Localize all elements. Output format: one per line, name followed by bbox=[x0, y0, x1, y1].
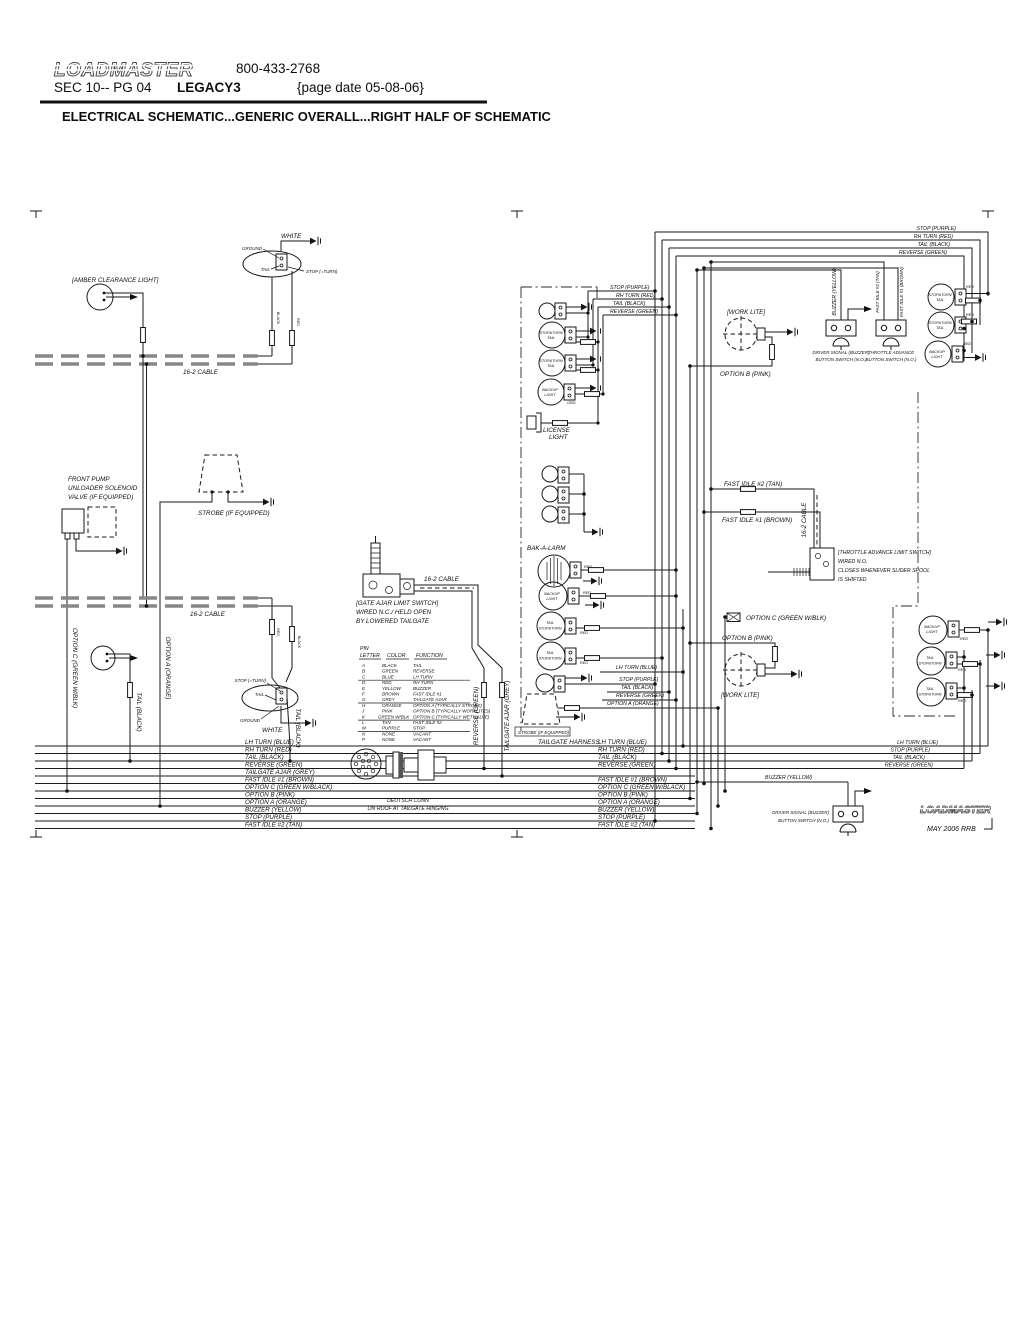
svg-text:GREEN: GREEN bbox=[382, 669, 399, 674]
wire-label: LH TURN (BLUE) bbox=[616, 665, 657, 671]
svg-text:RED: RED bbox=[958, 699, 966, 703]
pump-label-3: VALVE (IF EQUIPPED) bbox=[68, 494, 133, 501]
svg-text:BACKUP: BACKUP bbox=[544, 592, 560, 596]
svg-text:LIGHT: LIGHT bbox=[931, 355, 943, 359]
bus-label: RH TURN (RED) bbox=[598, 747, 645, 754]
deutsch-connector: DEUTSCH CONN ON ROOF AT TAILGATE HINGING bbox=[351, 749, 449, 812]
option-a-wire-label: OPTION A (ORANGE) bbox=[164, 637, 171, 700]
function-header: FUNCTION bbox=[416, 653, 443, 659]
svg-text:TAIL: TAIL bbox=[546, 621, 554, 625]
svg-text:H: H bbox=[362, 703, 366, 708]
option-c-valve: OPTION C (GREEN W/BLK) bbox=[725, 613, 826, 622]
wire-label: TAIL (BLACK) bbox=[893, 755, 926, 761]
license-label-2: LIGHT bbox=[549, 434, 569, 441]
bottom-right-routing: LH TURN (BLUE) STOP (PURPLE) TAIL (BLACK… bbox=[885, 392, 988, 769]
wire-label: REVERSE (GREEN) bbox=[616, 693, 664, 699]
model-name: LEGACY3 bbox=[177, 80, 241, 95]
deutsch-label-1: DEUTSCH CONN bbox=[387, 798, 429, 804]
svg-text:LIGHT: LIGHT bbox=[926, 630, 938, 634]
cable-label-2: 16-2 CABLE bbox=[190, 611, 226, 618]
pin-header: PIN bbox=[360, 646, 369, 652]
tail-label: TAIL bbox=[261, 267, 271, 272]
svg-text:BLACK: BLACK bbox=[382, 663, 398, 668]
black-wire-label: BLACK bbox=[276, 312, 280, 325]
svg-text:VACANT: VACANT bbox=[413, 737, 432, 742]
white-wire-label-2: WHITE bbox=[262, 727, 283, 734]
wire-label: LH TURN (BLUE) bbox=[897, 740, 938, 746]
svg-text:TAIL: TAIL bbox=[936, 298, 944, 302]
page-title: ELECTRICAL SCHEMATIC...GENERIC OVERALL..… bbox=[62, 109, 552, 124]
svg-text:TAN: TAN bbox=[382, 720, 391, 725]
strobe-label-1: STROBE (IF EQUIPPED) bbox=[198, 510, 270, 517]
bus-label: STOP (PURPLE) bbox=[245, 814, 292, 821]
fast-idle-1-label: FAST IDLE #1 (BROWN) bbox=[722, 517, 792, 524]
page-date: {page date 05-08-06} bbox=[297, 80, 424, 95]
bus-label: FAST IDLE #2 (TAN) bbox=[598, 822, 655, 829]
svg-text:ORANGE: ORANGE bbox=[382, 703, 403, 708]
svg-text:RED: RED bbox=[958, 668, 966, 672]
throttle-advance-label-1: THROTTLE ADVANCE bbox=[868, 350, 915, 355]
tail-light-top: WHITE GROUND TAIL STOP (=TURN) BLACK RED bbox=[242, 233, 338, 364]
bak-a-larm-label: BAK-A-LARM bbox=[527, 545, 566, 552]
bus-label: FAST IDLE #1 (BROWN) bbox=[245, 777, 314, 784]
svg-text:TAIL: TAIL bbox=[926, 687, 934, 691]
tail-light-lower: RED BLACK STOP (=TURN) TAIL GROUND WHITE… bbox=[235, 598, 316, 761]
fast-idle-circuit: FAST IDLE #2 (TAN) FAST IDLE #1 (BROWN) … bbox=[704, 481, 820, 548]
stop-turn-label: STOP (=TURN) bbox=[306, 269, 338, 274]
riser-wires bbox=[655, 232, 725, 829]
revision-date: MAY 2006 RRB bbox=[927, 826, 976, 833]
cable-label-4: 16-2 CABLE bbox=[801, 502, 808, 538]
footer-logo-block: LOADMASTER MAY 2006 RRB bbox=[920, 805, 991, 833]
svg-text:RED: RED bbox=[580, 661, 588, 665]
bus-label: TAILGATE AJAR (GREY) bbox=[245, 769, 315, 776]
bus-labels-left: LH TURN (BLUE) RH TURN (RED) TAIL (BLACK… bbox=[245, 739, 332, 829]
svg-text:GREY: GREY bbox=[382, 697, 396, 702]
tal-label-1: [THROTTLE ADVANCE LIMIT SWITCH] bbox=[837, 550, 931, 556]
svg-text:BACKUP: BACKUP bbox=[929, 350, 945, 354]
svg-text:RED: RED bbox=[966, 313, 974, 317]
phone-number: 800-433-2768 bbox=[236, 61, 320, 76]
driver-signal-switch-top: BUZZER (YELLOW) DRIVER SIGNAL (BUZZER) B… bbox=[697, 268, 872, 362]
rear-lights-upper-right: STOP&TURN TAIL RED STOP&TURN TAIL RED BA… bbox=[925, 284, 988, 367]
rear-lights-lower-right: BACKUP LIGHT RED TAIL STOP&TURN RED TAIL… bbox=[917, 616, 1007, 706]
wire-label: RH TURN (RED) bbox=[914, 234, 953, 240]
tal-label-2: WIRED N.O. bbox=[838, 559, 867, 565]
cable-bus-2: 16-2 CABLE bbox=[35, 598, 292, 618]
throttle-advance-limit-switch: [THROTTLE ADVANCE LIMIT SWITCH] WIRED N.… bbox=[768, 548, 931, 583]
buzzer-label-bottom: BUZZER (YELLOW) bbox=[765, 775, 813, 781]
wire-label: STOP (PURPLE) bbox=[917, 226, 957, 232]
svg-text:STOP&TURN: STOP&TURN bbox=[928, 321, 952, 325]
svg-text:TAIL: TAIL bbox=[547, 364, 555, 368]
svg-text:RED: RED bbox=[963, 342, 971, 346]
wire-label: REVERSE (GREEN) bbox=[899, 250, 947, 256]
svg-text:BUZZER: BUZZER bbox=[413, 686, 432, 691]
svg-text:G: G bbox=[362, 697, 366, 702]
option-b-label-1: OPTION B (PINK) bbox=[720, 371, 771, 378]
wire-label: REVERSE (GREEN) bbox=[610, 309, 658, 315]
cable-label-3: 16-2 CABLE bbox=[424, 576, 460, 583]
svg-text:LH TURN: LH TURN bbox=[413, 674, 433, 679]
svg-text:D: D bbox=[362, 680, 366, 685]
grd-label: GRD bbox=[567, 401, 576, 405]
bus-label: TAIL (BLACK) bbox=[598, 754, 637, 761]
driver-signal-label-1: DRIVER SIGNAL (BUZZER) bbox=[813, 350, 870, 355]
svg-text:E: E bbox=[362, 686, 366, 691]
svg-text:K: K bbox=[362, 714, 366, 719]
bus-label: OPTION B (PINK) bbox=[598, 792, 648, 799]
black-wire-label-2: BLACK bbox=[297, 636, 301, 649]
svg-text:BACKUP: BACKUP bbox=[924, 625, 940, 629]
svg-text:YELLOW: YELLOW bbox=[382, 686, 402, 691]
svg-text:OPTION A (TYPICALLY STROBE): OPTION A (TYPICALLY STROBE) bbox=[413, 703, 482, 708]
svg-text:RED: RED bbox=[960, 637, 968, 641]
marker-light-lower-left: TAIL (BLACK) bbox=[91, 646, 142, 761]
driver-signal-label-4: BUTTON SWITCH (N.O.) bbox=[778, 818, 829, 823]
fast-idle-2-wire-label: FAST IDLE #2 (TAN) bbox=[875, 271, 880, 313]
bak-a-larm: BAK-A-LARM RED bbox=[527, 545, 676, 587]
svg-text:STOP&TURN: STOP&TURN bbox=[538, 627, 562, 631]
svg-text:STOP&TURN: STOP&TURN bbox=[928, 293, 952, 297]
svg-text:J: J bbox=[361, 709, 365, 714]
svg-text:VACANT: VACANT bbox=[413, 731, 432, 736]
gate-label-1: [GATE AJAR LIMIT SWITCH] bbox=[355, 600, 438, 607]
bus-label: TAIL (BLACK) bbox=[245, 754, 284, 761]
svg-text:RED: RED bbox=[580, 631, 588, 635]
svg-text:RED: RED bbox=[382, 680, 392, 685]
bus-label: OPTION C (GREEN W/BLACK) bbox=[245, 784, 332, 791]
bus-label: OPTION C (GREEN W/BLACK) bbox=[598, 784, 685, 791]
option-c-label-2: OPTION C (GREEN W/BLK) bbox=[746, 615, 826, 622]
option-b-label-2: OPTION B (PINK) bbox=[722, 635, 773, 642]
svg-text:B: B bbox=[362, 669, 365, 674]
svg-text:C: C bbox=[362, 674, 366, 679]
svg-text:RH TURN: RH TURN bbox=[413, 680, 434, 685]
svg-text:NONE: NONE bbox=[382, 731, 396, 736]
driver-signal-label-3: DRIVER SIGNAL (BUZZER) bbox=[772, 810, 829, 815]
worklite-label-2: [WORK LITE] bbox=[720, 692, 759, 699]
svg-text:STOP&TURN: STOP&TURN bbox=[918, 662, 942, 666]
svg-text:LIGHT: LIGHT bbox=[546, 597, 558, 601]
svg-text:TAIL: TAIL bbox=[546, 651, 554, 655]
amber-clearance-light: [AMBER CLEARANCE LIGHT] bbox=[71, 277, 159, 356]
svg-text:L: L bbox=[362, 720, 365, 725]
tailgate-ajar-wire-label: TAILGATE AJAR (GREY) bbox=[504, 681, 511, 752]
red-wire-label-2: RED bbox=[276, 628, 280, 636]
svg-text:RED: RED bbox=[966, 285, 974, 289]
bus-label: FAST IDLE #2 (TAN) bbox=[245, 822, 302, 829]
section-page: SEC 10-- PG 04 bbox=[54, 80, 152, 95]
wire-label: TAIL (BLACK) bbox=[613, 301, 646, 307]
pump-label-2: UNLOADER SOLENOID bbox=[68, 485, 138, 492]
worklite-label-1: [WORK LITE] bbox=[726, 309, 765, 316]
svg-text:M: M bbox=[362, 726, 366, 731]
tail-black-wire-label-1: TAIL (BLACK) bbox=[135, 692, 142, 731]
fast-idle-1-wire-label: FAST IDLE #1 (BROWN) bbox=[899, 266, 904, 317]
bus-label: OPTION A (ORANGE) bbox=[598, 799, 660, 806]
loadmaster-footer-logo: LOADMASTER bbox=[920, 805, 991, 816]
svg-text:NONE: NONE bbox=[382, 737, 396, 742]
svg-text:GREEN W/BLK: GREEN W/BLK bbox=[378, 714, 410, 719]
ground-label-2: GROUND bbox=[240, 718, 261, 723]
bus-label: LH TURN (BLUE) bbox=[598, 739, 647, 746]
option-c-wire-label: OPTION C (GREEN W/BLK) bbox=[71, 628, 78, 708]
driver-signal-switch-bottom: BUZZER (YELLOW) DRIVER SIGNAL (BUZZER) B… bbox=[697, 775, 872, 836]
svg-text:OPTION C (TYPICALLY WET VALVE): OPTION C (TYPICALLY WET VALVE) bbox=[413, 714, 490, 719]
strobe-label-2: STROBE (IF EQUIPPED) bbox=[518, 730, 570, 735]
ground-label: GROUND bbox=[242, 246, 263, 251]
wire-label: TAIL (BLACK) bbox=[918, 242, 951, 248]
svg-text:STOP&TURN: STOP&TURN bbox=[538, 657, 562, 661]
svg-text:PURPLE: PURPLE bbox=[382, 726, 401, 731]
svg-text:TAIL: TAIL bbox=[926, 656, 934, 660]
svg-text:OPTION B (TYPICALLY WORKLITES): OPTION B (TYPICALLY WORKLITES) bbox=[413, 709, 491, 714]
letter-header: LETTER bbox=[360, 653, 380, 659]
red-wire-label: RED bbox=[296, 318, 300, 326]
svg-text:STOP&TURN: STOP&TURN bbox=[539, 331, 563, 335]
svg-text:A: A bbox=[361, 663, 365, 668]
svg-text:REVERSE: REVERSE bbox=[413, 669, 436, 674]
svg-text:BROWN: BROWN bbox=[382, 692, 400, 697]
svg-text:N: N bbox=[362, 731, 366, 736]
bus-label: OPTION B (PINK) bbox=[245, 792, 295, 799]
bus-label: BUZZER (YELLOW) bbox=[598, 807, 654, 814]
svg-text:PINK: PINK bbox=[382, 709, 394, 714]
wire-label: REVERSE (GREEN) bbox=[885, 763, 933, 769]
svg-text:STOP: STOP bbox=[413, 726, 425, 731]
color-header: COLOR bbox=[387, 653, 406, 659]
tailgate-lights-top: STOP (PURPLE) RH TURN (RED) TAIL (BLACK)… bbox=[527, 285, 676, 441]
worklite-bottom: OPTION B (PINK) [WORK LITE] bbox=[690, 635, 802, 699]
tal-label-3: CLOSES WHENEVER SLIDER SPOOL bbox=[838, 568, 930, 574]
driver-signal-label-2: BUTTON SWITCH (N.O.) bbox=[816, 357, 867, 362]
cable-label-1: 16-2 CABLE bbox=[183, 369, 219, 376]
bus-label: REVERSE (GREEN) bbox=[598, 762, 655, 769]
wire-label: STOP (PURPLE) bbox=[619, 677, 659, 683]
license-label-1: LICENSE bbox=[543, 427, 571, 434]
svg-text:P: P bbox=[362, 737, 365, 742]
bus-label: STOP (PURPLE) bbox=[598, 814, 645, 821]
svg-text:TAILGATE AJAR: TAILGATE AJAR bbox=[413, 697, 447, 702]
tailgate-harness-label: TAILGATE HARNESS bbox=[538, 739, 600, 746]
buzzer-wire-label: BUZZER (YELLOW) bbox=[832, 268, 838, 316]
amber-clearance-label: [AMBER CLEARANCE LIGHT] bbox=[71, 277, 159, 284]
register-marks bbox=[30, 211, 994, 837]
wire-label: OPTION A (ORANGE) bbox=[607, 701, 659, 707]
schematic-page: LOADMASTER 800-433-2768 SEC 10-- PG 04 L… bbox=[0, 0, 1020, 1320]
marker-lights-middle bbox=[542, 466, 603, 536]
bus-label: RH TURN (RED) bbox=[245, 747, 292, 754]
stop-turn-label-2: STOP (=TURN) bbox=[235, 678, 267, 683]
front-pump-solenoid-valve: FRONT PUMP UNLOADER SOLENOID VALVE (IF E… bbox=[62, 476, 138, 791]
tail-black-wire-label-2: TAIL (BLACK) bbox=[294, 708, 301, 747]
tail-label-2: TAIL bbox=[255, 692, 265, 697]
pump-label-1: FRONT PUMP bbox=[68, 476, 110, 483]
worklite-top: [WORK LITE] OPTION B (PINK) bbox=[690, 309, 798, 378]
svg-text:LIGHT: LIGHT bbox=[544, 393, 556, 397]
svg-text:STOP&TURN: STOP&TURN bbox=[918, 693, 942, 697]
pin-table: PIN LETTER COLOR FUNCTION ABLACKTAIL BGR… bbox=[358, 646, 491, 742]
bus-label: LH TURN (BLUE) bbox=[245, 739, 294, 746]
tail-stop-turn-middle-1: TAIL STOP&TURN RED bbox=[537, 612, 683, 640]
wire-label: TAIL (BLACK) bbox=[621, 685, 654, 691]
svg-text:TAIL: TAIL bbox=[547, 336, 555, 340]
svg-text:TAIL: TAIL bbox=[413, 663, 423, 668]
tal-label-4: IS SHIFTED bbox=[838, 577, 867, 583]
gate-label-3: BY LOWERED TAILGATE bbox=[356, 618, 430, 625]
svg-text:BLUE: BLUE bbox=[382, 674, 395, 679]
svg-text:TAIL: TAIL bbox=[936, 326, 944, 330]
bus-label: REVERSE (GREEN) bbox=[245, 762, 302, 769]
wire-label: RH TURN (RED) bbox=[616, 293, 655, 299]
bus-labels-middle: LH TURN (BLUE) RH TURN (RED) TAIL (BLACK… bbox=[598, 739, 685, 829]
svg-text:F: F bbox=[362, 692, 365, 697]
white-wire-label: WHITE bbox=[281, 233, 302, 240]
svg-text:FAST IDLE #1: FAST IDLE #1 bbox=[413, 692, 442, 697]
wire-label: STOP (PURPLE) bbox=[610, 285, 650, 291]
deutsch-label-2: ON ROOF AT TAILGATE HINGING bbox=[368, 806, 449, 812]
svg-text:FAST IDLE #2: FAST IDLE #2 bbox=[413, 720, 442, 725]
svg-text:BACKUP: BACKUP bbox=[542, 388, 558, 392]
throttle-advance-label-2: BUTTON SWITCH (N.O.) bbox=[866, 357, 917, 362]
bus-label: BUZZER (YELLOW) bbox=[245, 807, 301, 814]
svg-text:STOP&TURN: STOP&TURN bbox=[539, 359, 563, 363]
bus-label: OPTION A (ORANGE) bbox=[245, 799, 307, 806]
gate-label-2: WIRED N.C./ HELD OPEN bbox=[356, 609, 432, 616]
wire-label: STOP (PURPLE) bbox=[891, 748, 931, 754]
page-header: LOADMASTER 800-433-2768 SEC 10-- PG 04 L… bbox=[40, 60, 552, 124]
bus-label: FAST IDLE #1 (BROWN) bbox=[598, 777, 667, 784]
